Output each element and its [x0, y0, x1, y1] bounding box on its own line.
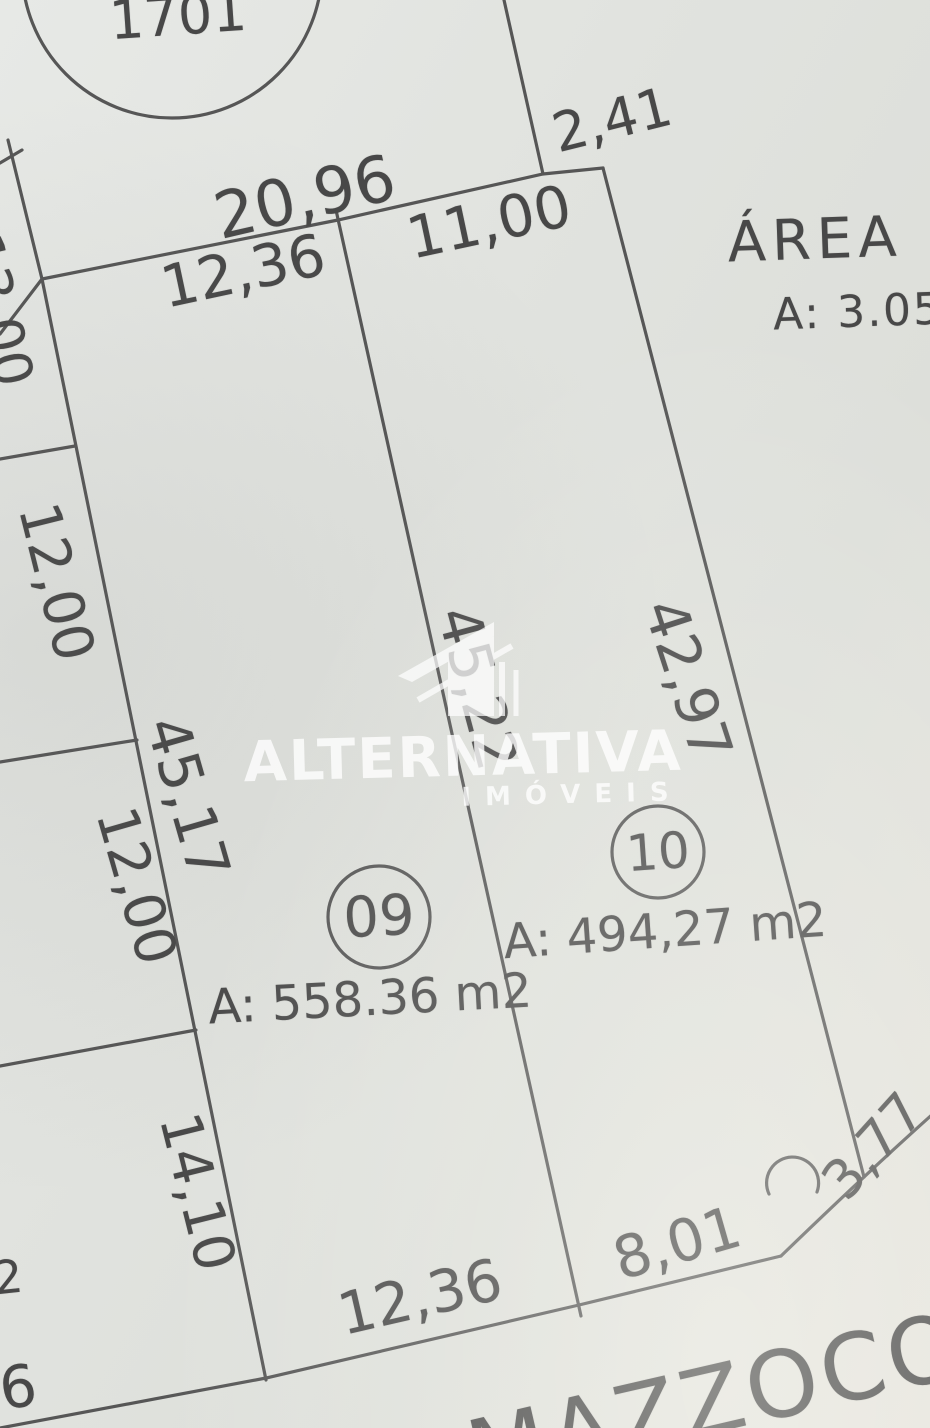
- curve-arc-symbol: [767, 1157, 819, 1194]
- top-right-boundary-line: [504, 0, 543, 174]
- area-value-label: A: 3.05: [772, 284, 930, 341]
- area-title-label: ÁREA: [726, 204, 903, 275]
- watermark-subtitle-text: IMÓVEIS: [461, 777, 683, 813]
- left-neighbour-tick-1: [0, 446, 75, 459]
- alternativa-house-logo-icon: [396, 600, 536, 730]
- lot10-number-label: 10: [624, 821, 692, 883]
- lot09-number-label: 09: [342, 883, 417, 952]
- survey-plan-photo: 1701 20,96 12,36 11,00 2,41 ÁREA A: 3.05…: [0, 0, 930, 1428]
- left-neighbour-tick-3: [0, 1030, 196, 1066]
- left-neighbour-tick-2: [0, 740, 137, 762]
